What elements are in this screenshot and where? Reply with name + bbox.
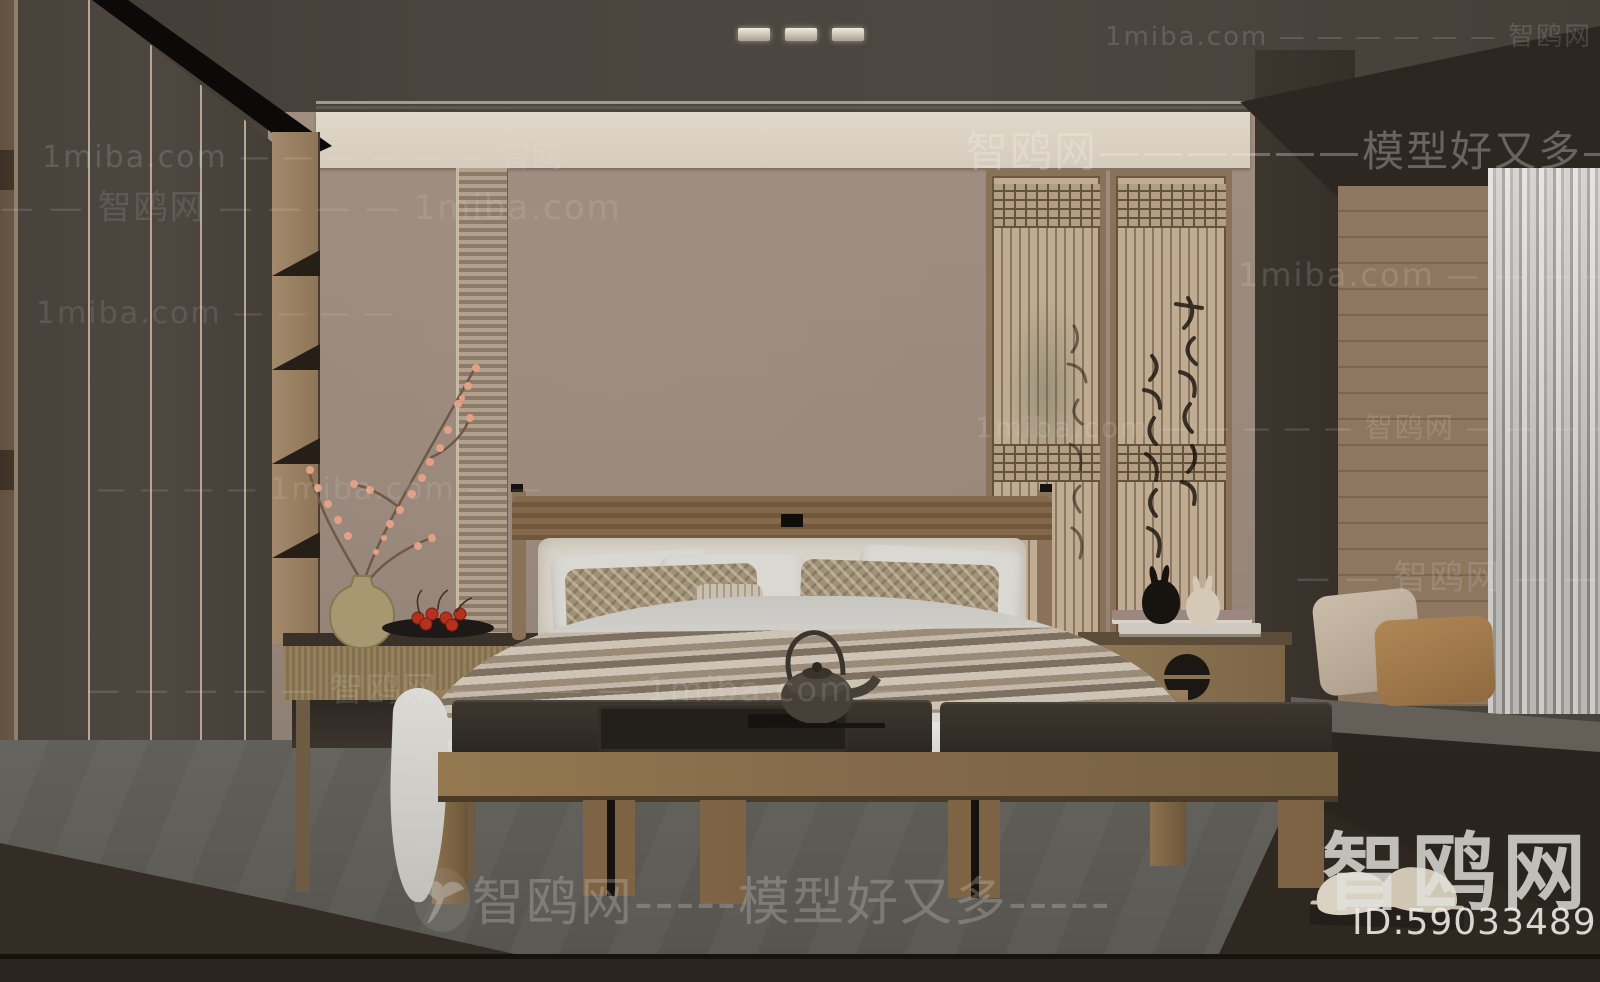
fretwork-band	[1116, 184, 1226, 228]
bench-rail	[438, 752, 1338, 796]
seat-pillow-caramel	[1374, 615, 1496, 707]
headboard-post-cap	[1040, 484, 1052, 492]
bench-leg-slot	[607, 800, 615, 896]
calligraphy-art	[1062, 316, 1096, 576]
headboard-inlay	[781, 514, 803, 527]
rabbit-figurine-white	[1186, 588, 1220, 626]
curtain	[1488, 168, 1600, 714]
calligraphy-art	[1136, 286, 1216, 576]
ceiling-spotlight	[738, 28, 770, 41]
bench-leg	[583, 800, 635, 896]
headboard-post-cap	[511, 484, 523, 492]
bench-leg	[1278, 800, 1324, 888]
cove-band	[316, 112, 1250, 168]
bench-leg-slot	[971, 800, 979, 898]
shelf	[272, 250, 320, 276]
bench-rail-shadow	[438, 796, 1338, 802]
bench-leg	[948, 800, 1000, 898]
floor-border-band	[0, 959, 1600, 982]
vase	[330, 576, 394, 648]
rabbit-figurine-black	[1142, 580, 1180, 624]
bedroom-3d-render: 1miba.com — — — — — — 智鸥网 — — — — — 智鸥网—…	[0, 0, 1600, 982]
ceiling-spotlight	[832, 28, 864, 41]
console-leg	[296, 700, 310, 892]
ceiling-spotlight	[785, 28, 817, 41]
fretwork-band	[992, 184, 1100, 228]
lantern-teapot	[755, 585, 925, 740]
seagull-logo-icon	[414, 868, 470, 932]
bench-leg	[700, 800, 746, 904]
book	[1112, 610, 1252, 624]
